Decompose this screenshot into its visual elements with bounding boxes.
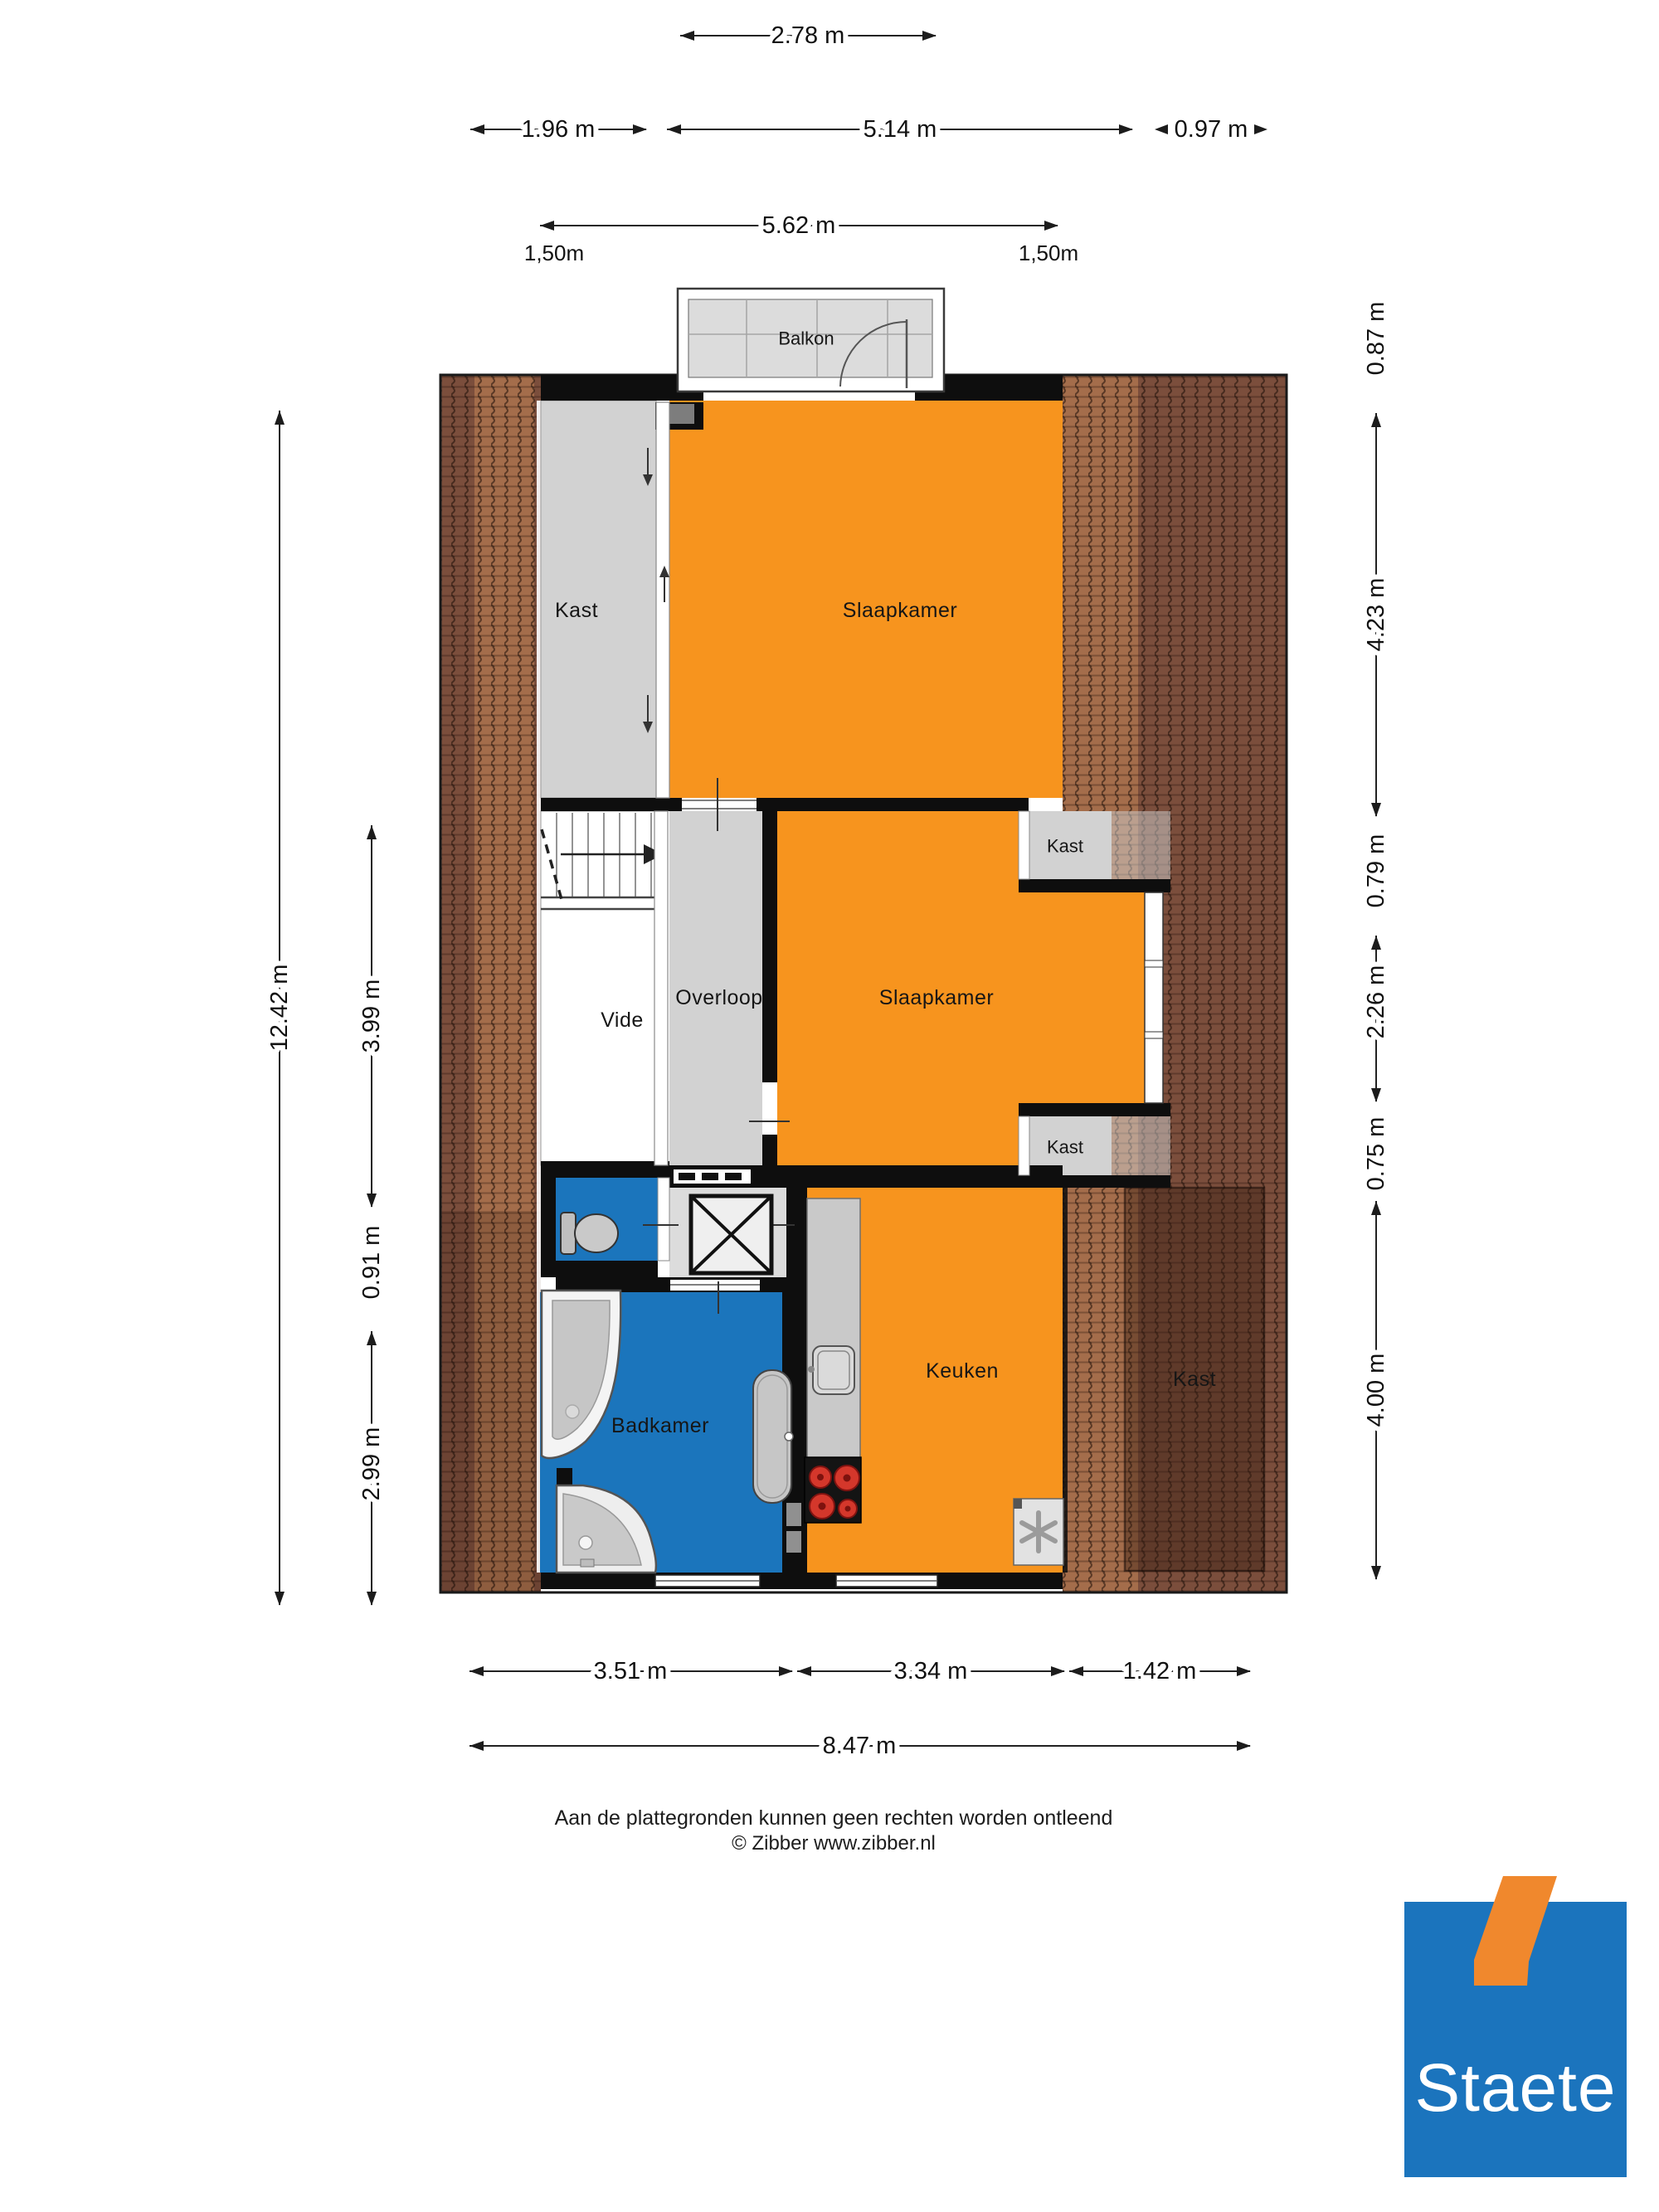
kast-rechts-onder-label: Kast — [1047, 1137, 1083, 1158]
dim-top-278: 2.78 m — [771, 22, 845, 49]
wall-toilet-left — [541, 1161, 556, 1277]
opening-dashes — [679, 1173, 742, 1180]
duct-a — [786, 1503, 801, 1526]
dim-left-091: 0.91 m — [358, 1226, 385, 1300]
room-kast-rechts-onder-ext — [1112, 1116, 1170, 1175]
window-dormer-mullion-a — [1145, 960, 1163, 967]
door-slk2 — [762, 1082, 777, 1135]
floorplan-page: Balkon — [0, 0, 1659, 2212]
vide-label: Vide — [601, 1009, 644, 1032]
ventilation-notch — [1014, 1499, 1022, 1509]
dim-right-087: 0.87 m — [1363, 302, 1389, 376]
vide-overloop-rail — [654, 811, 668, 1165]
badkamer-label: Badkamer — [611, 1414, 709, 1437]
wall-slk2-left-lower — [762, 1135, 777, 1165]
floorplan-canvas: Balkon — [0, 0, 1659, 2212]
dim-right-079: 0.79 m — [1363, 834, 1389, 908]
wall-mid-b — [757, 798, 1029, 811]
wall-kast-bottom — [541, 798, 658, 811]
wall-dormer-bottom — [1019, 1103, 1170, 1116]
dim-bottom-847: 8.47 m — [823, 1733, 897, 1759]
duct-b — [786, 1531, 801, 1553]
staete-logo: Staete — [1404, 1876, 1627, 2177]
shower-drain — [579, 1536, 592, 1549]
overloop-label: Overloop — [675, 986, 762, 1009]
wall-bottom — [541, 1573, 1063, 1589]
dim-bottom-142: 1.42 m — [1123, 1658, 1197, 1685]
dim-left-299: 2.99 m — [358, 1427, 385, 1501]
dim-bottom-334: 3.34 m — [894, 1658, 968, 1685]
dim-top-097: 0.97 m — [1175, 116, 1248, 143]
dim-right-400: 4.00 m — [1363, 1354, 1389, 1427]
dim-left-399: 3.99 m — [358, 980, 385, 1053]
dim-right-075: 0.75 m — [1363, 1117, 1389, 1191]
bathtub-drain — [566, 1405, 579, 1418]
door-kast-boven — [1019, 811, 1029, 879]
footer-disclaimer: Aan de plattegronden kunnen geen rechten… — [555, 1806, 1113, 1830]
wall-dormer-top — [1019, 879, 1170, 892]
door-toilet — [658, 1178, 669, 1261]
dim-top-196: 1.96 m — [522, 116, 596, 143]
kast-groot-label: Kast — [1173, 1368, 1216, 1391]
kitchen-tap — [808, 1366, 815, 1373]
room-dormer-floor — [1063, 892, 1145, 1103]
dim-right-423: 4.23 m — [1363, 578, 1389, 652]
kast-links-label: Kast — [555, 599, 598, 622]
wall-slk2-keuken — [762, 1165, 1063, 1188]
washbasin-tap — [785, 1432, 793, 1441]
logo-wordmark: Staete — [1414, 2050, 1616, 2126]
wall-kast-onder-bottom — [1019, 1175, 1170, 1188]
wall-toilet-bottom — [541, 1261, 658, 1277]
balkon: Balkon — [678, 289, 944, 391]
dim-top-562: 5.62 m — [762, 212, 836, 239]
door-kast-onder — [1019, 1116, 1029, 1175]
kast-rechts-boven-label: Kast — [1047, 836, 1083, 857]
footer-copyright: © Zibber www.zibber.nl — [732, 1832, 936, 1855]
dim-left-1242: 12.42 m — [266, 965, 293, 1052]
wall-shaft-right — [786, 1178, 807, 1281]
roof-left-shade — [440, 1211, 541, 1592]
dim-right-226: 2.26 m — [1363, 965, 1389, 1039]
dim-top-150-left: 1,50m — [524, 241, 584, 265]
slaapkamer-1-label: Slaapkamer — [843, 599, 957, 622]
window-dormer — [1145, 892, 1163, 1103]
dim-bottom-351: 3.51 m — [594, 1658, 668, 1685]
dim-top-150-right: 1,50m — [1019, 241, 1078, 265]
dim-top-514: 5.14 m — [864, 116, 937, 143]
room-kast-rechts-boven-ext — [1112, 811, 1170, 879]
window-dormer-mullion-b — [1145, 1032, 1163, 1038]
wall-vide-bottom — [541, 1161, 669, 1178]
shower-fixture — [581, 1559, 594, 1567]
slaapkamer-2-label: Slaapkamer — [879, 986, 994, 1009]
toilet-bowl — [575, 1214, 618, 1252]
wall-slk2-left-upper — [762, 811, 777, 1082]
sliding-door-band — [656, 402, 669, 798]
toilet-tank — [561, 1213, 576, 1254]
balkon-label: Balkon — [778, 328, 834, 349]
wall-mid-a — [658, 798, 682, 811]
keuken-label: Keuken — [926, 1359, 999, 1383]
